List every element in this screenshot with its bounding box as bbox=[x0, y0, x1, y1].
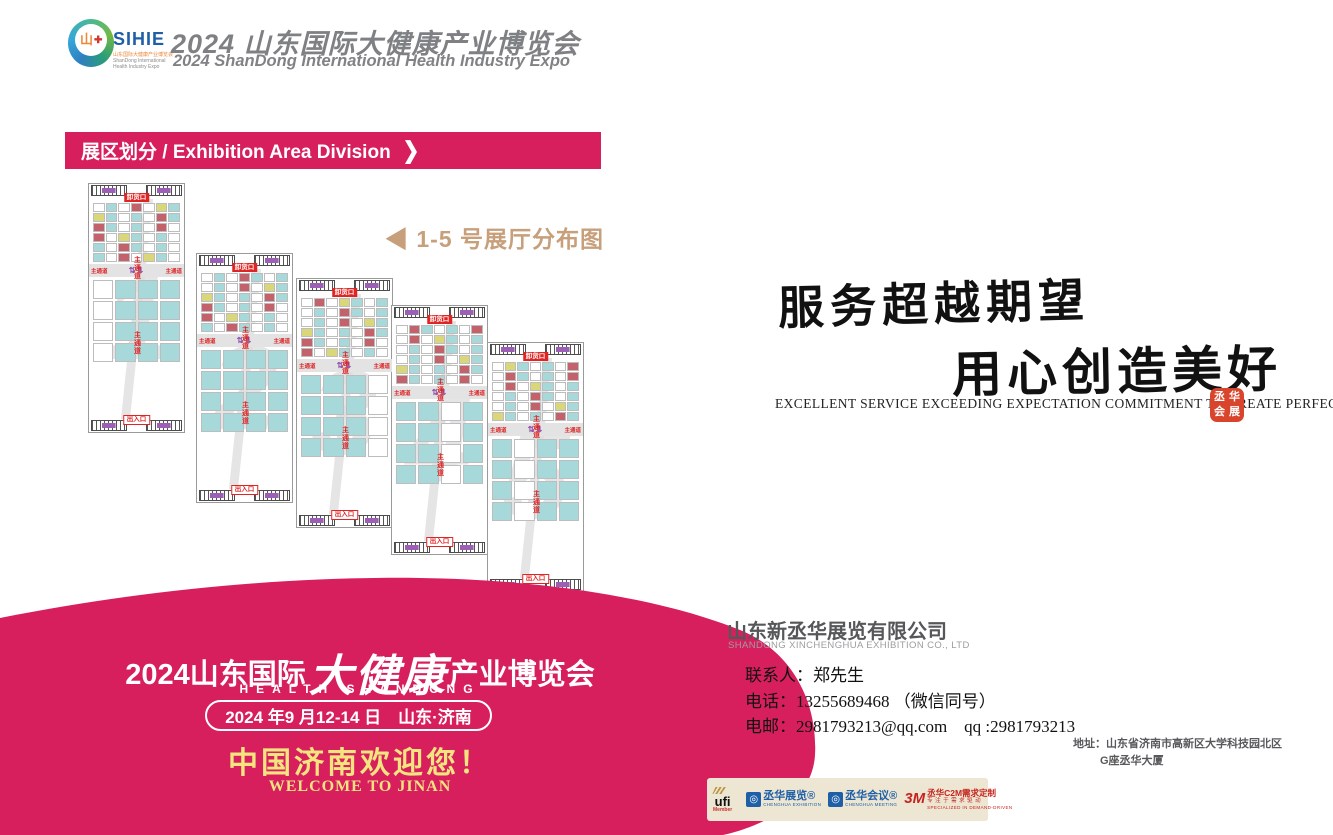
logo-cross-icon: ✚ bbox=[94, 35, 102, 46]
main-aisle-label: 主通道 bbox=[132, 256, 142, 280]
brochure-page: 山 ✚ SIHIE 山东国际大健康产业博览会 ShanDong Internat… bbox=[0, 0, 1333, 835]
unload-gate-label: 卸货口 bbox=[124, 193, 150, 202]
hall-bottom-facilities: 出入口 bbox=[197, 489, 292, 504]
unload-gate-label: 卸货口 bbox=[232, 263, 258, 272]
hall-2-map: 卸货口2主通道⇅⇅主通道主通道主通道出入口 bbox=[196, 253, 293, 503]
hall-top-facilities: 卸货口 bbox=[297, 279, 392, 294]
main-aisle-label: 主通道 bbox=[132, 331, 142, 355]
expo-logo-icon: 山 ✚ bbox=[68, 19, 114, 67]
contact-person: 联系人：郑先生 bbox=[745, 661, 864, 686]
main-aisle-label: 主通道 bbox=[340, 351, 350, 375]
main-aisle-label: 主通道 bbox=[531, 490, 541, 514]
chenghua-meeting-logo: ◎ 丞华会议® CHENGHUA MEETING bbox=[828, 791, 897, 808]
main-aisle-label: 主通道 bbox=[240, 401, 250, 425]
partner-logos-strip: ufi Member ◎ 丞华展览® CHENGHUA EXHIBITION ◎… bbox=[707, 778, 988, 821]
unload-gate-label: 卸货口 bbox=[332, 288, 358, 297]
company-address-line2: G座丞华大厦 bbox=[1100, 752, 1164, 768]
booth-grid-small bbox=[197, 269, 292, 334]
company-address-line1: 地址：山东省济南市高新区大学科技园北区 bbox=[1073, 735, 1282, 751]
unload-gate-label: 卸货口 bbox=[523, 352, 549, 361]
promo-subtitle: HEALTH SHANDONG bbox=[0, 682, 720, 696]
ufi-member-logo: ufi Member bbox=[713, 787, 732, 813]
hall-top-facilities: 卸货口 bbox=[392, 306, 487, 321]
entrance-label: 出入口 bbox=[426, 537, 454, 547]
floorplan-caption: ◀ 1-5 号展厅分布图 bbox=[385, 220, 604, 254]
chenghua-exhibition-logo: ◎ 丞华展览® CHENGHUA EXHIBITION bbox=[746, 791, 821, 808]
entrance-label: 出入口 bbox=[231, 485, 259, 495]
main-aisle-label: 主通道 bbox=[435, 453, 445, 477]
section-banner: 展区划分 / Exhibition Area Division ❯ bbox=[65, 132, 601, 169]
spiral-icon: ◎ bbox=[746, 792, 761, 807]
welcome-cn: 中国济南欢迎您！ bbox=[0, 738, 720, 782]
booth-grid-small bbox=[392, 321, 487, 386]
page-subtitle: 2024 ShanDong International Health Indus… bbox=[173, 52, 570, 71]
unload-gate-label: 卸货口 bbox=[427, 315, 453, 324]
welcome-en: WELCOME TO JINAN bbox=[0, 778, 720, 796]
c2m-logo: 3M 丞华C2M需求定制 专注于需求驱动 SPECIALIZED IN DEMA… bbox=[904, 789, 1012, 811]
chevron-right-icon: ❯ bbox=[403, 136, 420, 165]
hall-bottom-facilities: 出入口 bbox=[89, 419, 184, 434]
hall-top-facilities: 卸货口 bbox=[488, 343, 583, 358]
company-name-en: SHANDONG XINCHENGHUA EXHIBITION CO., LTD bbox=[728, 640, 970, 651]
hall-bottom-facilities: 出入口 bbox=[297, 514, 392, 529]
main-aisle-label: 主通道 bbox=[240, 326, 250, 350]
hall-bottom-facilities: 出入口 bbox=[392, 541, 487, 556]
booth-grid-small bbox=[89, 199, 184, 264]
section-banner-label: 展区划分 / Exhibition Area Division bbox=[81, 137, 391, 164]
logo-mountain-icon: 山 bbox=[80, 29, 93, 48]
contact-email: 电邮：2981793213@qq.com qq :2981793213 bbox=[745, 712, 1075, 737]
booth-grid-small bbox=[488, 358, 583, 423]
hall-top-facilities: 卸货口 bbox=[197, 254, 292, 269]
contact-phone: 电话：13255689468 （微信同号） bbox=[745, 687, 996, 712]
main-aisle-label: 主通道 bbox=[340, 426, 350, 450]
entrance-label: 出入口 bbox=[522, 574, 550, 584]
booth-grid-small bbox=[297, 294, 392, 359]
entrance-label: 出入口 bbox=[331, 510, 359, 520]
hall-top-facilities: 卸货口 bbox=[89, 184, 184, 199]
ufi-wing-icon bbox=[712, 787, 733, 794]
entrance-label: 出入口 bbox=[123, 415, 151, 425]
hall-1-map: 卸货口1主通道⇅⇅主通道主通道主通道出入口 bbox=[88, 183, 185, 433]
event-date-pill: 2024 年9 月12-14 日 山东·济南 bbox=[205, 700, 492, 731]
slogan-line1: 服务超越期望 bbox=[777, 264, 1091, 338]
red-seal-stamp-icon: 丞华 会展 bbox=[1210, 388, 1244, 422]
hall-3-map: 卸货口3主通道⇅⇅主通道主通道主通道出入口 bbox=[296, 278, 393, 528]
promo-block: 2024山东国际大健康产业博览会 HEALTH SHANDONG 2024 年9… bbox=[0, 570, 740, 835]
hall-4-map: 卸货口4主通道⇅⇅主通道主通道主通道出入口 bbox=[391, 305, 488, 555]
slogan-english: EXCELLENT SERVICE EXCEEDING EXPECTATION … bbox=[775, 396, 1333, 412]
hall-5-map: 卸货口5主通道⇅⇅主通道主通道主通道出入口 bbox=[487, 342, 584, 592]
main-aisle-label: 主通道 bbox=[531, 415, 541, 439]
main-aisle-label: 主通道 bbox=[435, 378, 445, 402]
spiral-icon: ◎ bbox=[828, 792, 843, 807]
